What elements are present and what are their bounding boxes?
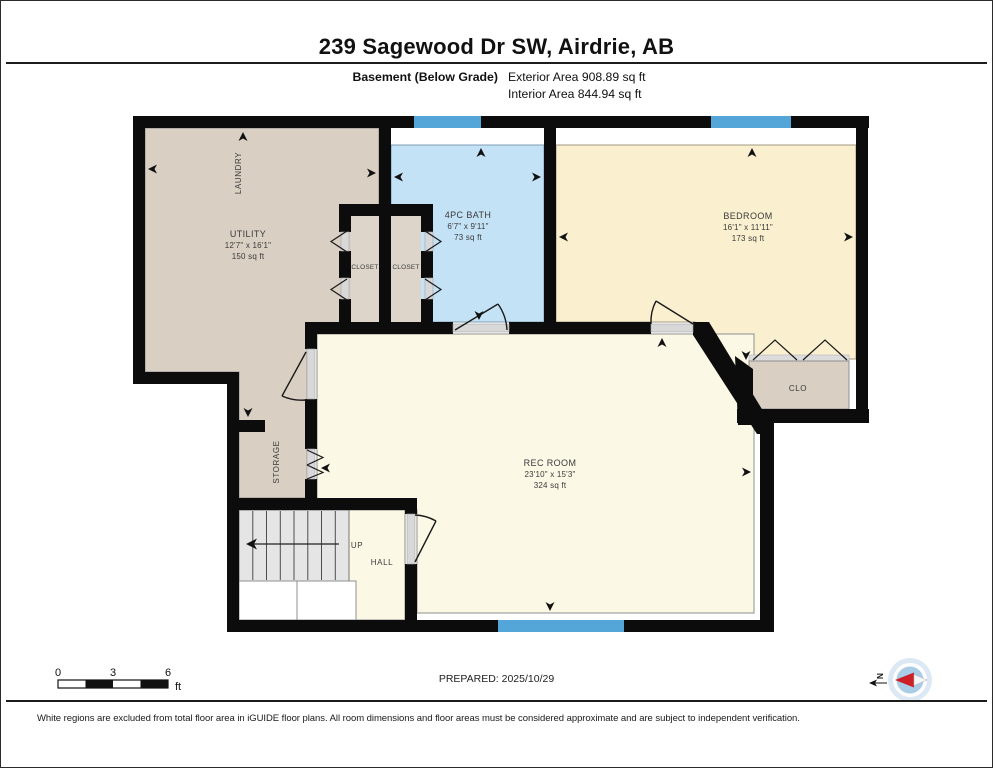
wall-segment xyxy=(305,479,317,510)
bath-label: 4PC BATH xyxy=(445,210,492,220)
bedroom-window xyxy=(711,116,791,128)
utility-door-threshold xyxy=(307,349,315,399)
bath-area: 73 sq ft xyxy=(454,233,482,242)
footer-divider xyxy=(6,700,987,702)
bedroom-dims: 16'1" x 11'11" xyxy=(723,223,773,232)
rec-room-area: 324 sq ft xyxy=(534,481,567,490)
rec-room-label: REC ROOM xyxy=(524,458,577,468)
closet-left-track-b xyxy=(341,278,349,299)
wall-segment xyxy=(509,322,651,334)
clo-label: CLO xyxy=(789,384,807,393)
stairs-up-label: UP xyxy=(351,541,363,550)
utility-area: 150 sq ft xyxy=(232,252,265,261)
closet-right-label: CLOSET xyxy=(392,264,419,271)
wall-segment xyxy=(339,251,351,278)
wall-segment xyxy=(339,299,351,322)
wall-segment xyxy=(421,216,433,232)
wall-segment xyxy=(421,251,433,278)
hall-label: HALL xyxy=(371,558,393,567)
wall-segment xyxy=(421,299,433,322)
bedroom-window-well xyxy=(556,128,856,145)
excluded-box-left xyxy=(239,581,297,620)
wall-segment xyxy=(405,498,417,514)
wall-segment xyxy=(544,116,556,334)
wall-segment xyxy=(133,372,239,384)
wall-segment xyxy=(133,116,145,384)
bath-window xyxy=(414,116,481,128)
wall-segment xyxy=(405,564,417,620)
bath-dims: 6'7" x 9'11" xyxy=(447,222,488,231)
closet-left-label: CLOSET xyxy=(351,264,378,271)
wall-segment xyxy=(305,399,317,449)
hall-door-threshold xyxy=(407,514,415,564)
wall-segment xyxy=(856,116,868,423)
wall-segment xyxy=(760,423,774,632)
bedroom-label: BEDROOM xyxy=(723,211,772,221)
storage-label: STORAGE xyxy=(272,440,281,483)
wall-segment xyxy=(227,420,265,432)
laundry-label: LAUNDRY xyxy=(234,152,243,194)
excluded-box-right xyxy=(297,581,356,620)
prepared-date: PREPARED: 2025/10/29 xyxy=(1,673,992,685)
wall-segment xyxy=(379,116,391,216)
bedroom-area: 173 sq ft xyxy=(732,234,765,243)
wall-segment xyxy=(305,322,453,334)
bath-door-threshold xyxy=(453,324,509,332)
bath-window-well xyxy=(391,128,544,145)
floorplan-drawing: UTILITY 12'7" x 16'1" 150 sq ft LAUNDRY … xyxy=(1,1,993,768)
disclaimer-text: White regions are excluded from total fl… xyxy=(37,713,800,724)
bedroom-door-threshold xyxy=(651,324,693,332)
wall-segment xyxy=(339,216,351,232)
rec-room-window xyxy=(498,620,624,632)
wall-segment xyxy=(379,216,391,322)
wall-segment xyxy=(227,498,417,510)
utility-label: UTILITY xyxy=(230,229,266,239)
floorplan-page: 239 Sagewood Dr SW, Airdrie, AB Basement… xyxy=(0,0,993,768)
rec-room-dims: 23'10" x 15'3" xyxy=(524,470,575,479)
utility-dims: 12'7" x 16'1" xyxy=(225,241,271,250)
